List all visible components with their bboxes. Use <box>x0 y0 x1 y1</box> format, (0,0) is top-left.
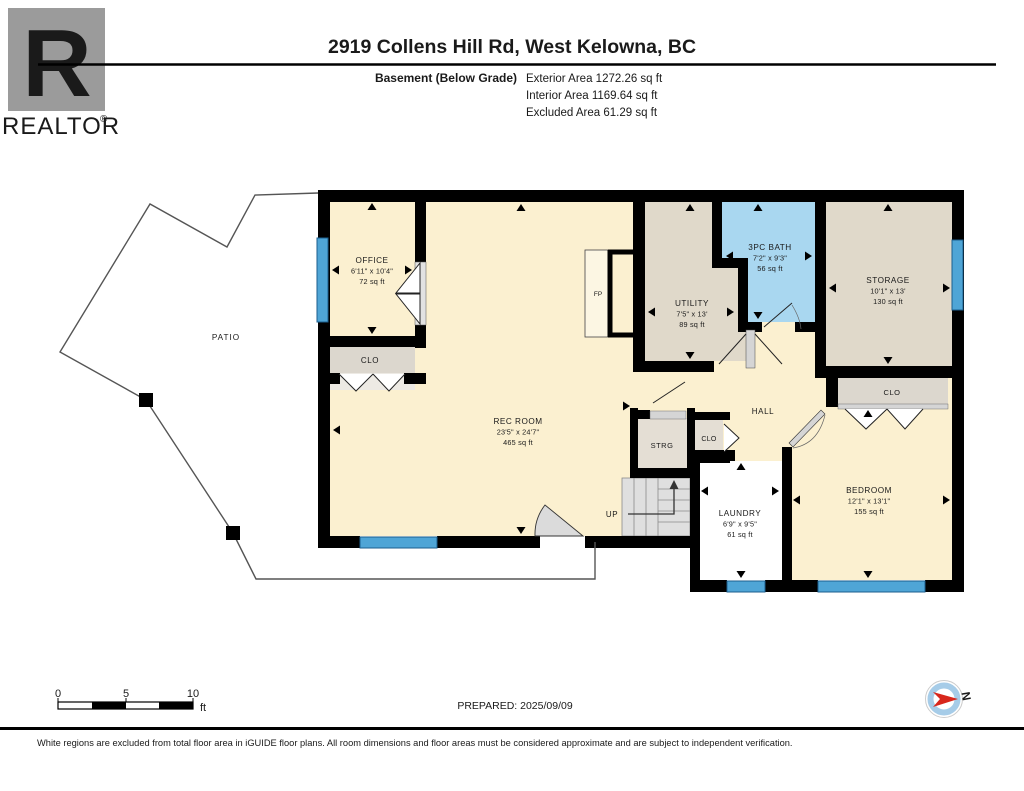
footer: White regions are excluded from total fl… <box>0 727 1024 748</box>
interior-area: Interior Area 1169.64 sq ft <box>526 90 658 102</box>
patio-post <box>139 393 153 407</box>
svg-text:89 sq ft: 89 sq ft <box>679 320 705 329</box>
svg-text:72 sq ft: 72 sq ft <box>359 277 385 286</box>
footer-disclaimer: White regions are excluded from total fl… <box>37 738 793 748</box>
room-label-closet-hall: CLO <box>701 436 717 443</box>
scale-unit: ft <box>200 702 206 714</box>
room-label-utility: UTILITY 7'5" x 13' 89 sq ft <box>675 299 709 329</box>
staircase <box>622 478 690 536</box>
room-label-patio: PATIO <box>212 333 240 342</box>
floor-plan-page: R REALTOR ® 2919 Collens Hill Rd, West K… <box>0 0 1024 791</box>
svg-text:6'9" x 9'5": 6'9" x 9'5" <box>723 520 757 529</box>
exterior-area: Exterior Area 1272.26 sq ft <box>526 73 663 85</box>
svg-text:155 sq ft: 155 sq ft <box>854 507 884 516</box>
svg-text:7'5" x 13': 7'5" x 13' <box>676 310 708 319</box>
stairs-up-label: UP <box>606 510 618 519</box>
svg-text:LAUNDRY: LAUNDRY <box>719 509 762 518</box>
svg-text:UTILITY: UTILITY <box>675 299 709 308</box>
svg-text:REC ROOM: REC ROOM <box>493 417 542 426</box>
fireplace-label: FP <box>594 291 602 298</box>
room-label-closet-bedroom: CLO <box>884 388 901 397</box>
svg-text:STORAGE: STORAGE <box>866 276 909 285</box>
registered-mark: ® <box>100 114 108 125</box>
room-label-hall: HALL <box>752 407 774 416</box>
floor-label: Basement (Below Grade) <box>375 71 517 85</box>
header: R REALTOR ® 2919 Collens Hill Rd, West K… <box>2 8 996 140</box>
svg-text:23'5" x 24'7": 23'5" x 24'7" <box>497 428 540 437</box>
room-label-closet-office: CLO <box>361 356 379 365</box>
bedroom-closet-track <box>838 404 948 409</box>
page-title: 2919 Collens Hill Rd, West Kelowna, BC <box>328 36 696 58</box>
compass: N <box>926 681 974 718</box>
patio-post <box>226 526 240 540</box>
prepared-date: PREPARED: 2025/09/09 <box>457 700 573 712</box>
svg-text:61 sq ft: 61 sq ft <box>727 530 753 539</box>
rec-room-window <box>360 537 437 548</box>
scale-bar: 0 5 10 ft <box>55 688 206 714</box>
laundry-window <box>727 581 765 592</box>
svg-text:6'11" x 10'4": 6'11" x 10'4" <box>351 267 393 276</box>
svg-text:BEDROOM: BEDROOM <box>846 486 892 495</box>
svg-text:465 sq ft: 465 sq ft <box>503 438 533 447</box>
storage-window <box>952 240 963 310</box>
strg-door-jamb <box>650 411 686 419</box>
svg-text:130 sq ft: 130 sq ft <box>873 297 903 306</box>
svg-text:7'2" x 9'3": 7'2" x 9'3" <box>753 254 787 263</box>
svg-text:10'1" x 13': 10'1" x 13' <box>870 287 906 296</box>
compass-north-label: N <box>958 691 973 702</box>
hall-door-jamb <box>746 330 755 368</box>
excluded-area: Excluded Area 61.29 sq ft <box>526 107 658 119</box>
svg-text:3PC BATH: 3PC BATH <box>748 243 791 252</box>
svg-text:12'1" x 13'1": 12'1" x 13'1" <box>848 497 891 506</box>
svg-text:OFFICE: OFFICE <box>355 256 388 265</box>
bedroom-window <box>818 581 925 592</box>
office-window <box>317 238 328 322</box>
svg-text:56 sq ft: 56 sq ft <box>757 264 783 273</box>
room-label-strg: STRG <box>651 441 674 450</box>
